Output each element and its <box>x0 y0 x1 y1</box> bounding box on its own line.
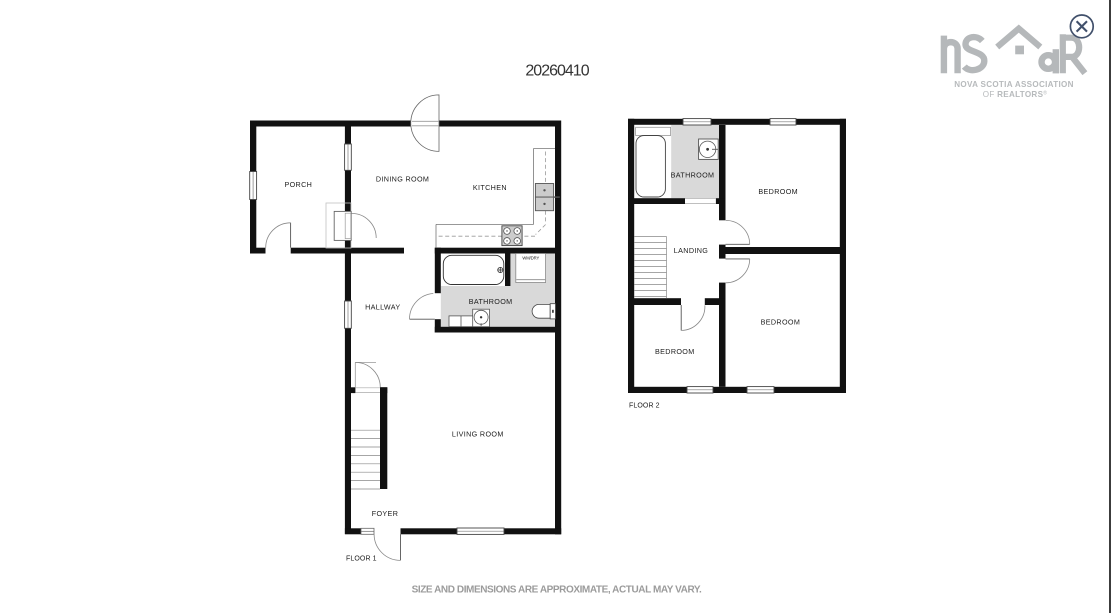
svg-text:LIVING ROOM: LIVING ROOM <box>452 429 504 438</box>
svg-text:LANDING: LANDING <box>674 246 708 255</box>
svg-text:PORCH: PORCH <box>284 180 312 189</box>
svg-text:BATHROOM: BATHROOM <box>671 170 715 179</box>
svg-text:BATHROOM: BATHROOM <box>469 297 513 306</box>
svg-text:WM/DRY: WM/DRY <box>522 255 539 260</box>
svg-text:DINING ROOM: DINING ROOM <box>376 174 429 183</box>
svg-text:FOYER: FOYER <box>372 509 399 518</box>
svg-text:KITCHEN: KITCHEN <box>473 183 507 192</box>
svg-text:FLOOR 2: FLOOR 2 <box>629 403 660 410</box>
svg-text:20260410: 20260410 <box>525 63 589 80</box>
svg-text:NOVA SCOTIA ASSOCIATION: NOVA SCOTIA ASSOCIATION <box>954 80 1073 89</box>
svg-text:HALLWAY: HALLWAY <box>365 302 400 311</box>
svg-text:BEDROOM: BEDROOM <box>758 187 798 196</box>
svg-text:BEDROOM: BEDROOM <box>655 347 695 356</box>
svg-text:SIZE AND DIMENSIONS ARE APPROX: SIZE AND DIMENSIONS ARE APPROXIMATE, ACT… <box>412 584 702 595</box>
svg-text:BEDROOM: BEDROOM <box>761 317 801 326</box>
svg-text:FLOOR 1: FLOOR 1 <box>346 555 377 562</box>
svg-text:OF REALTORS®: OF REALTORS® <box>983 90 1048 99</box>
